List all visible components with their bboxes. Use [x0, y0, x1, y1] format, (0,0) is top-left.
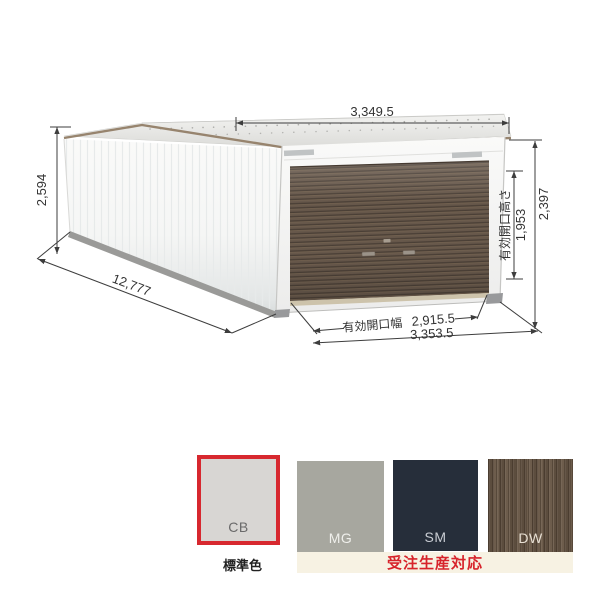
dim-overall-height: 2,397	[536, 188, 551, 221]
shutter-handle-right	[403, 250, 415, 254]
standard-color-label: 標準色	[197, 555, 288, 574]
swatch-code-cb: CB	[228, 519, 248, 541]
dim-opening-width-label: 有効開口幅	[342, 315, 403, 335]
made-to-order-label: 受注生産対応	[387, 552, 483, 573]
swatch-code-mg: MG	[329, 530, 353, 552]
garage-side-wall	[64, 139, 287, 318]
color-swatch-cb[interactable]: CB	[197, 455, 280, 545]
shutter-handle-left	[362, 252, 375, 256]
dim-opening-height-value: 1,953	[513, 209, 528, 242]
swatch-code-dw: DW	[518, 530, 542, 552]
swatch-code-sm: SM	[425, 529, 447, 551]
garage-dimension-drawing: 3,349.5 2,594 12,777 有効開口幅 2,915.5 3,353…	[0, 0, 600, 440]
product-spec-image: 3,349.5 2,594 12,777 有効開口幅 2,915.5 3,353…	[0, 0, 600, 600]
color-swatch-mg[interactable]: MG	[297, 461, 384, 552]
foundation-block-left	[274, 309, 290, 318]
dim-overall-width: 3,353.5	[410, 325, 454, 342]
roller-shutter-door	[274, 161, 503, 318]
color-swatch-sm[interactable]: SM	[393, 460, 478, 551]
shutter-lock	[383, 239, 390, 243]
dim-body-height: 2,594	[34, 174, 49, 207]
made-to-order-strip: 受注生産対応	[297, 552, 573, 573]
dim-opening-height-label: 有効開口高さ	[497, 189, 512, 261]
dim-roof-width: 3,349.5	[350, 104, 393, 119]
color-swatch-dw[interactable]: DW	[488, 459, 573, 552]
